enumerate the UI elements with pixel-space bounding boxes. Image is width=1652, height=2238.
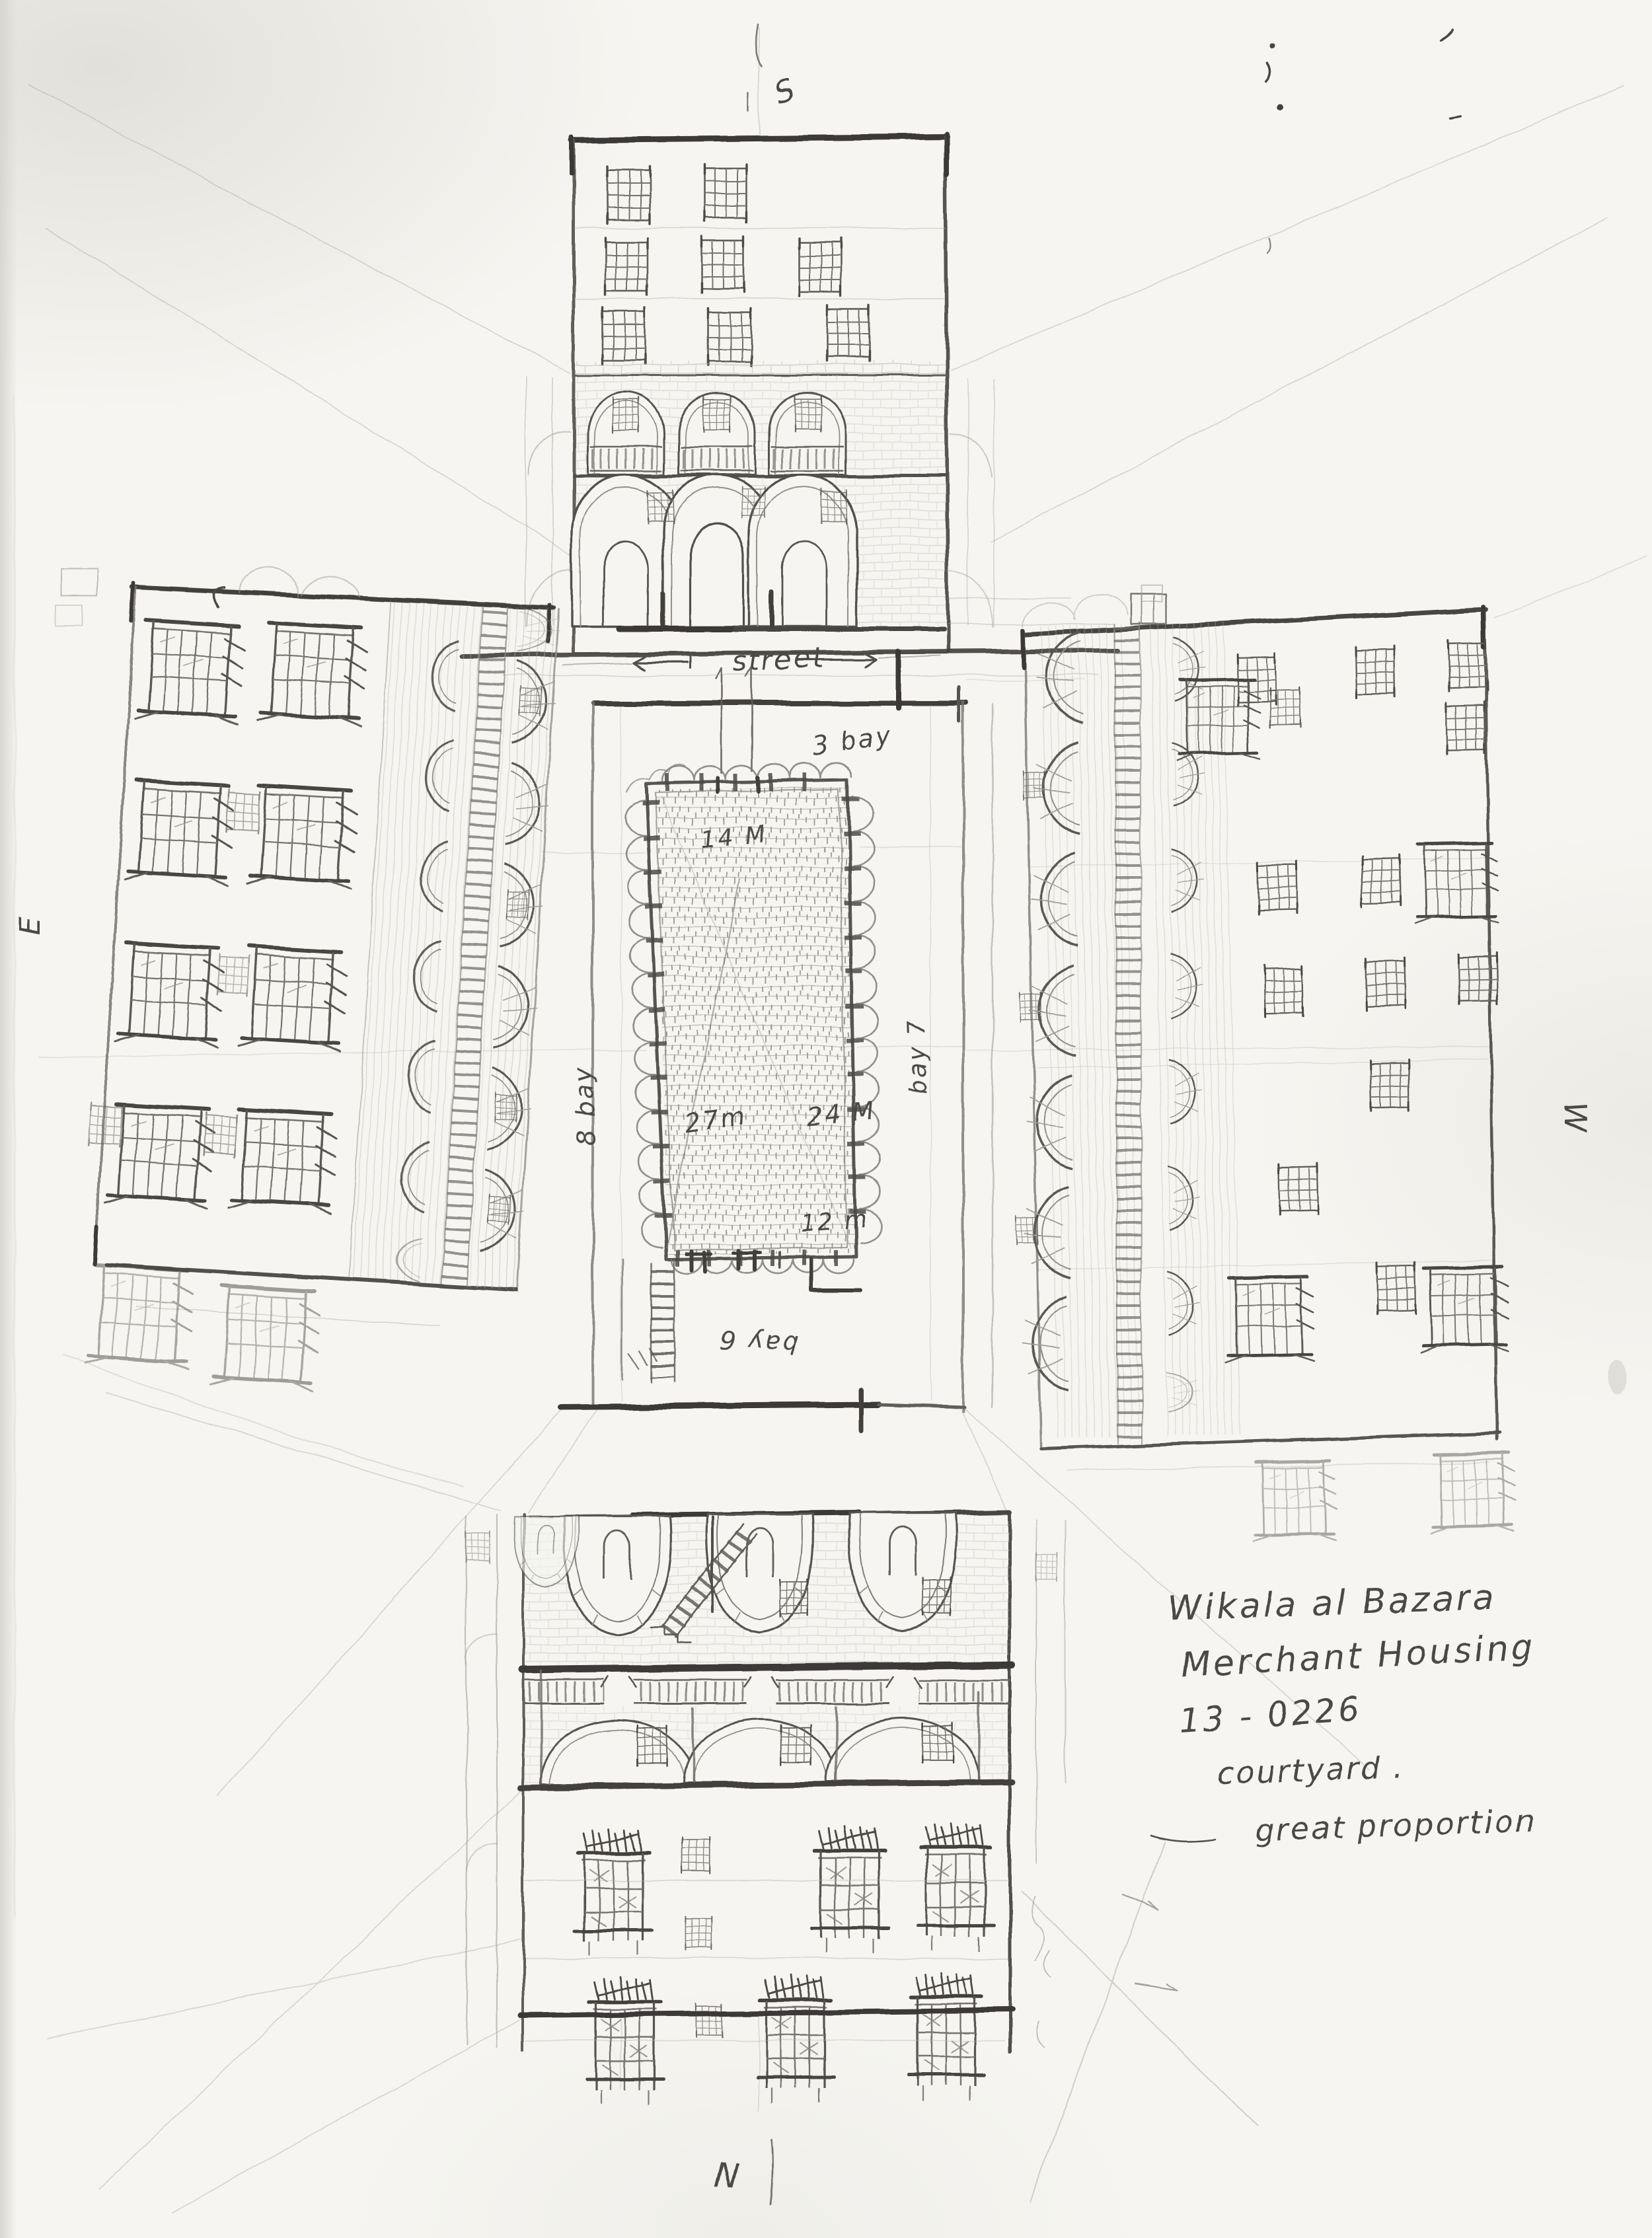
dim-top-bays: 3 bay — [811, 720, 894, 760]
note-courtyard-line: courtyard . — [1216, 1749, 1406, 1791]
south-upper-wall-windows — [575, 165, 945, 365]
note-title-line1: Wikala al Bazara — [1167, 1578, 1497, 1629]
south-elevation — [526, 134, 1115, 653]
compass-north-label: N — [713, 2156, 742, 2196]
three-bay-dimension-ticks — [716, 667, 752, 773]
street-arrow-left — [563, 655, 690, 669]
entry-passage — [622, 1250, 860, 1382]
note-dash-stroke — [1151, 1836, 1215, 1842]
east-wing-arcade — [350, 599, 562, 1290]
north-elevation — [466, 1512, 1257, 2202]
sketch-canvas: S N E W street 3 bay 14 M 27m 24 M 12 m … — [0, 0, 1652, 2238]
dim-bottom-width: 12 m — [800, 1206, 870, 1238]
south-upper-arcade — [574, 377, 946, 476]
title-note-block: Wikala al Bazara Merchant Housing 13 - 0… — [1167, 1578, 1537, 1848]
note-title-line2: Merchant Housing — [1180, 1627, 1536, 1686]
compass-south-label: S — [769, 70, 802, 111]
compass-east-label: E — [13, 915, 47, 936]
scan-edge-shadow — [0, 0, 17, 2238]
north-balustrade — [525, 1674, 1010, 1707]
sketch-page: S N E W street 3 bay 14 M 27m 24 M 12 m … — [0, 0, 1652, 2238]
note-proportion-line: great proportion — [1254, 1803, 1537, 1848]
east-wing-windows — [74, 613, 368, 1392]
dim-left-bays: 8 bay — [568, 1064, 602, 1146]
south-lower-arcade — [572, 474, 948, 653]
note-date-code: 13 - 0226 — [1178, 1690, 1363, 1740]
north-upper-arch-tier — [513, 1513, 1012, 1670]
east-wing-elevation — [74, 559, 562, 1403]
dim-bottom-bays: bay 6 — [717, 1325, 799, 1359]
west-wing-arcade — [1004, 620, 1244, 1446]
south-masonry-band — [575, 361, 945, 377]
dim-right-bays: bay 7 — [903, 1018, 932, 1095]
west-wing-elevation — [1003, 586, 1515, 1546]
compass-west-label: W — [1558, 1102, 1593, 1134]
north-lower-wall-windows — [521, 1824, 1012, 2105]
street-label: street — [731, 641, 826, 678]
